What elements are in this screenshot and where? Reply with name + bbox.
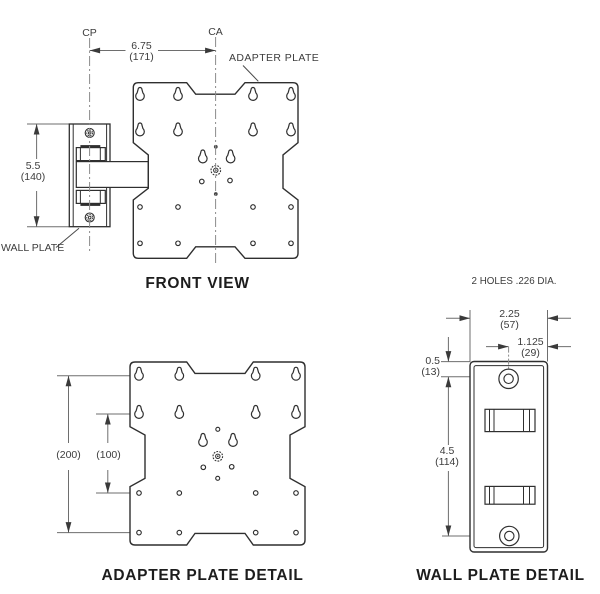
dim-wall-half: 1.125 (29) [517,337,543,360]
dim-width-front: 6.75 (171) [129,41,154,64]
dim-wall-span-in: 4.5 [435,446,459,458]
dim-wall-width: 2.25 (57) [499,309,519,332]
dim-wall-half-mm: (29) [517,348,543,360]
dim-wall-span-mm: (114) [435,457,459,469]
cp-label: CP [82,28,97,40]
mount-arm [76,162,148,188]
technical-drawing-page: CP CA 6.75 (171) ADAPTER PLATE 5.5 (140)… [0,0,600,594]
dim-vesa-200: (200) [56,450,81,462]
dim-wall-span: 4.5 (114) [435,446,459,469]
dim-width-front-mm: (171) [129,52,154,64]
holes-note: 2 HOLES .226 DIA. [472,276,557,288]
technical-drawing [0,0,600,594]
front-view-caption: FRONT VIEW [145,275,249,293]
dim-wall-top-mm: (13) [406,367,440,379]
dim-vesa-100: (100) [96,450,121,462]
dim-wall-half-in: 1.125 [517,337,543,349]
adapter-plate-detail-drawing [57,362,305,545]
adapter-plate-label: ADAPTER PLATE [229,53,319,65]
dim-width-front-in: 6.75 [129,41,154,53]
wall-plate-detail-outline [470,362,548,553]
wall-plate-detail-drawing [441,310,571,552]
dim-wall-top-offset: 0.5 (13) [406,356,440,379]
wall-plate-hole-top [499,369,518,388]
ca-label: CA [208,27,223,39]
wall-plate-detail-caption: WALL PLATE DETAIL [416,567,585,585]
pivot-hub-detail [213,452,223,462]
wall-plate-hole-bottom [500,526,519,545]
dim-wall-width-mm: (57) [499,320,519,332]
adapter-plate-detail-caption: ADAPTER PLATE DETAIL [101,567,303,585]
dim-wall-width-in: 2.25 [499,309,519,321]
front-view-drawing [27,37,298,263]
dim-height-front-in: 5.5 [21,161,46,173]
dim-height-front-mm: (140) [21,172,46,184]
adapter-plate-leader [243,66,258,82]
dim-height-front: 5.5 (140) [21,161,46,184]
wall-plate-label: WALL PLATE [1,243,64,255]
